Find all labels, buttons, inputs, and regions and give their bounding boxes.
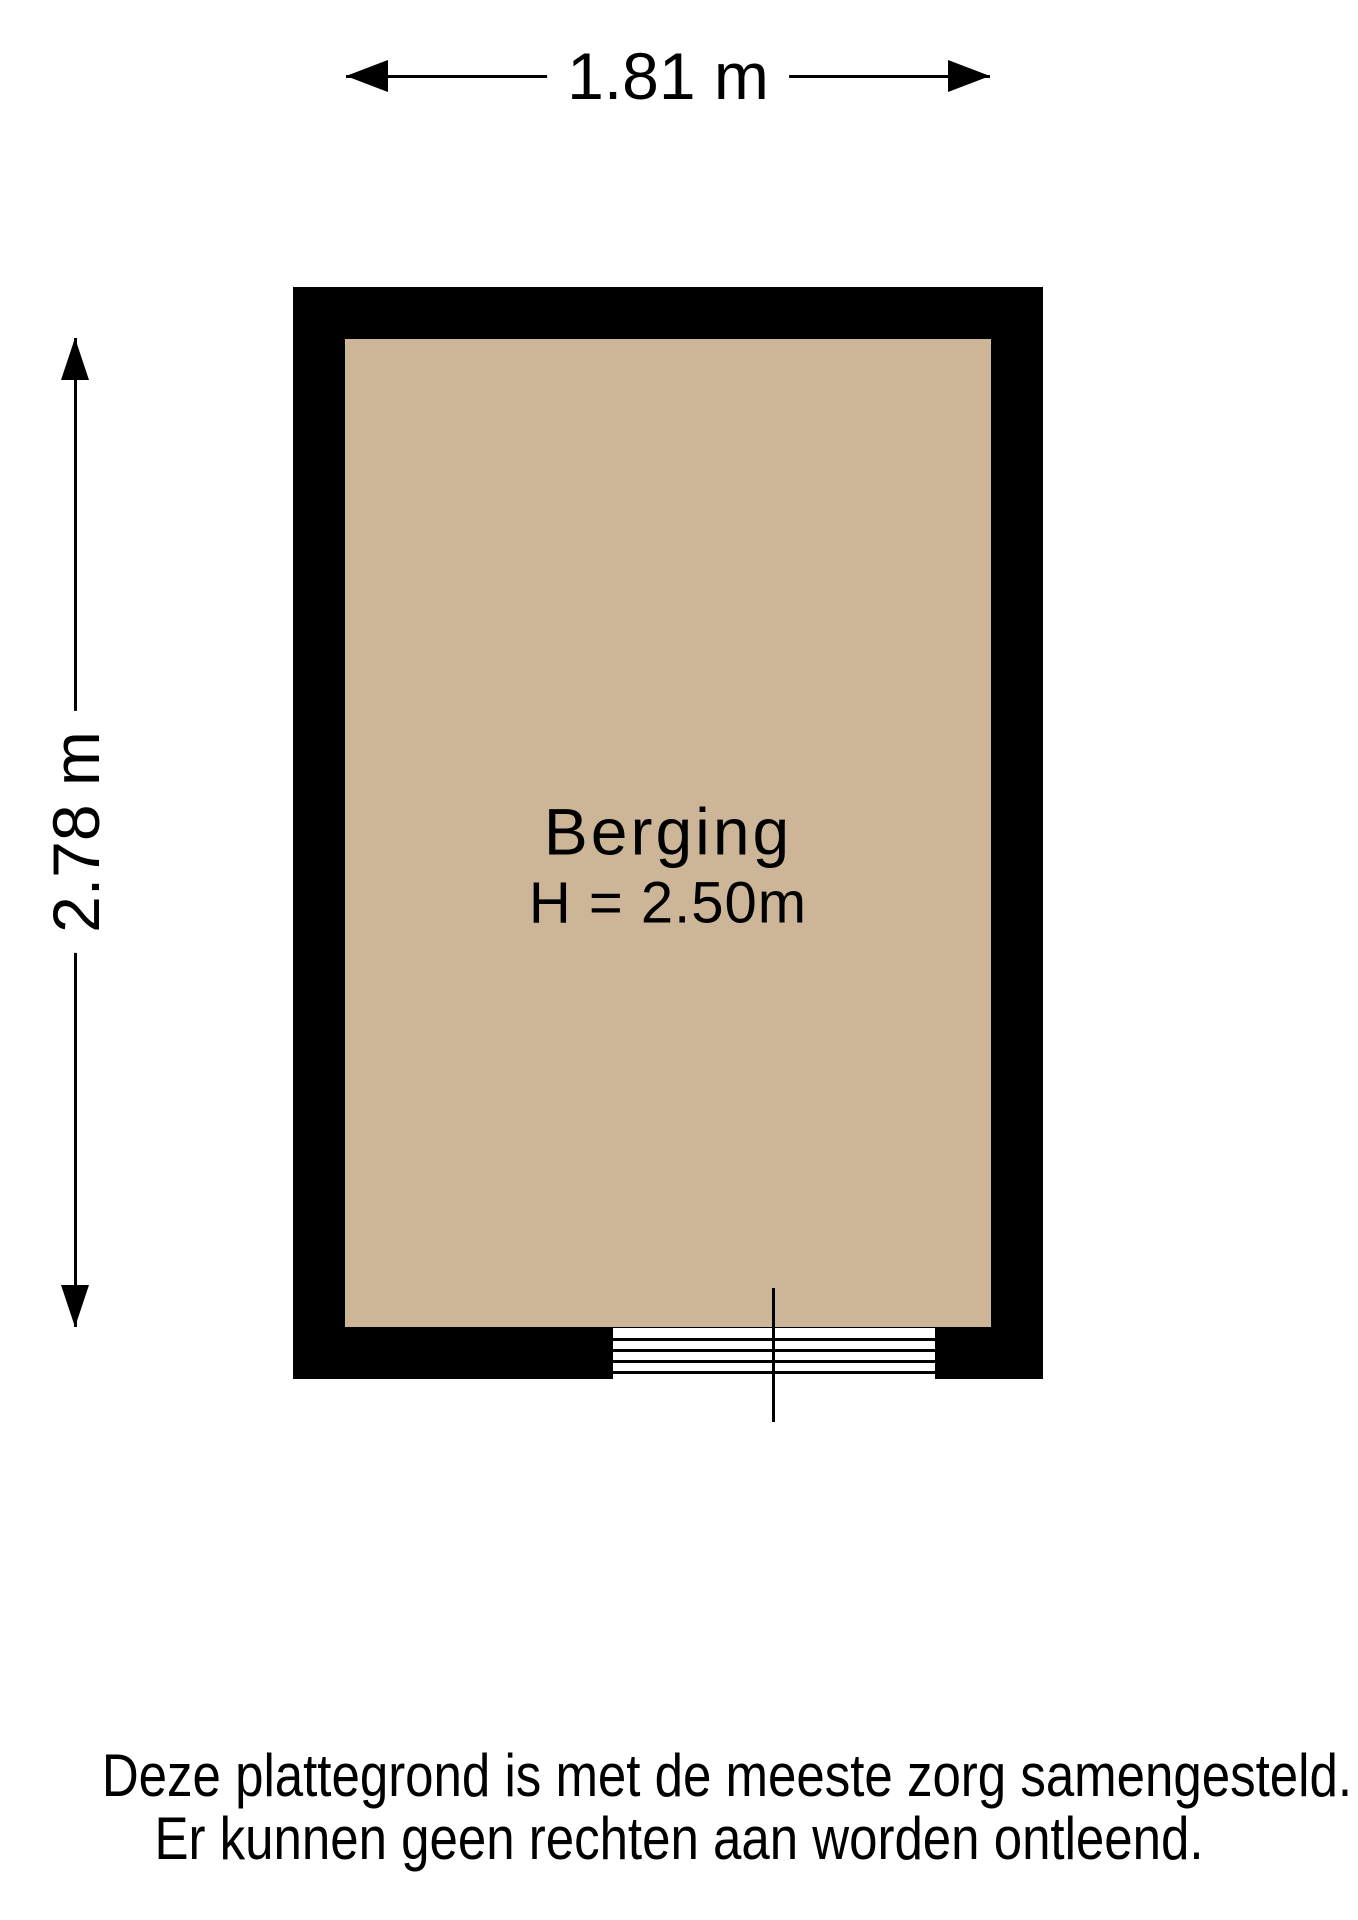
floorplan-canvas: 1.81 m 2.78 m Berging H = 2.50m Deze pla… xyxy=(0,0,1358,1920)
arrow-up-icon xyxy=(61,338,89,380)
width-dimension-label: 1.81 m xyxy=(547,43,789,109)
room-label: Berging H = 2.50m xyxy=(529,795,807,938)
arrow-left-icon xyxy=(346,60,388,92)
arrow-down-icon xyxy=(61,1285,89,1327)
disclaimer-line-2: Er kunnen geen rechten aan worden ontlee… xyxy=(102,1807,1256,1870)
door-center-line xyxy=(772,1288,775,1422)
room-ceiling-height-label: H = 2.50m xyxy=(529,871,807,938)
height-dimension-label: 2.78 m xyxy=(43,711,109,953)
room-name: Berging xyxy=(529,795,807,871)
arrow-right-icon xyxy=(948,60,990,92)
disclaimer-line-1: Deze plattegrond is met de meeste zorg s… xyxy=(102,1744,1256,1807)
disclaimer: Deze plattegrond is met de meeste zorg s… xyxy=(102,1744,1256,1870)
